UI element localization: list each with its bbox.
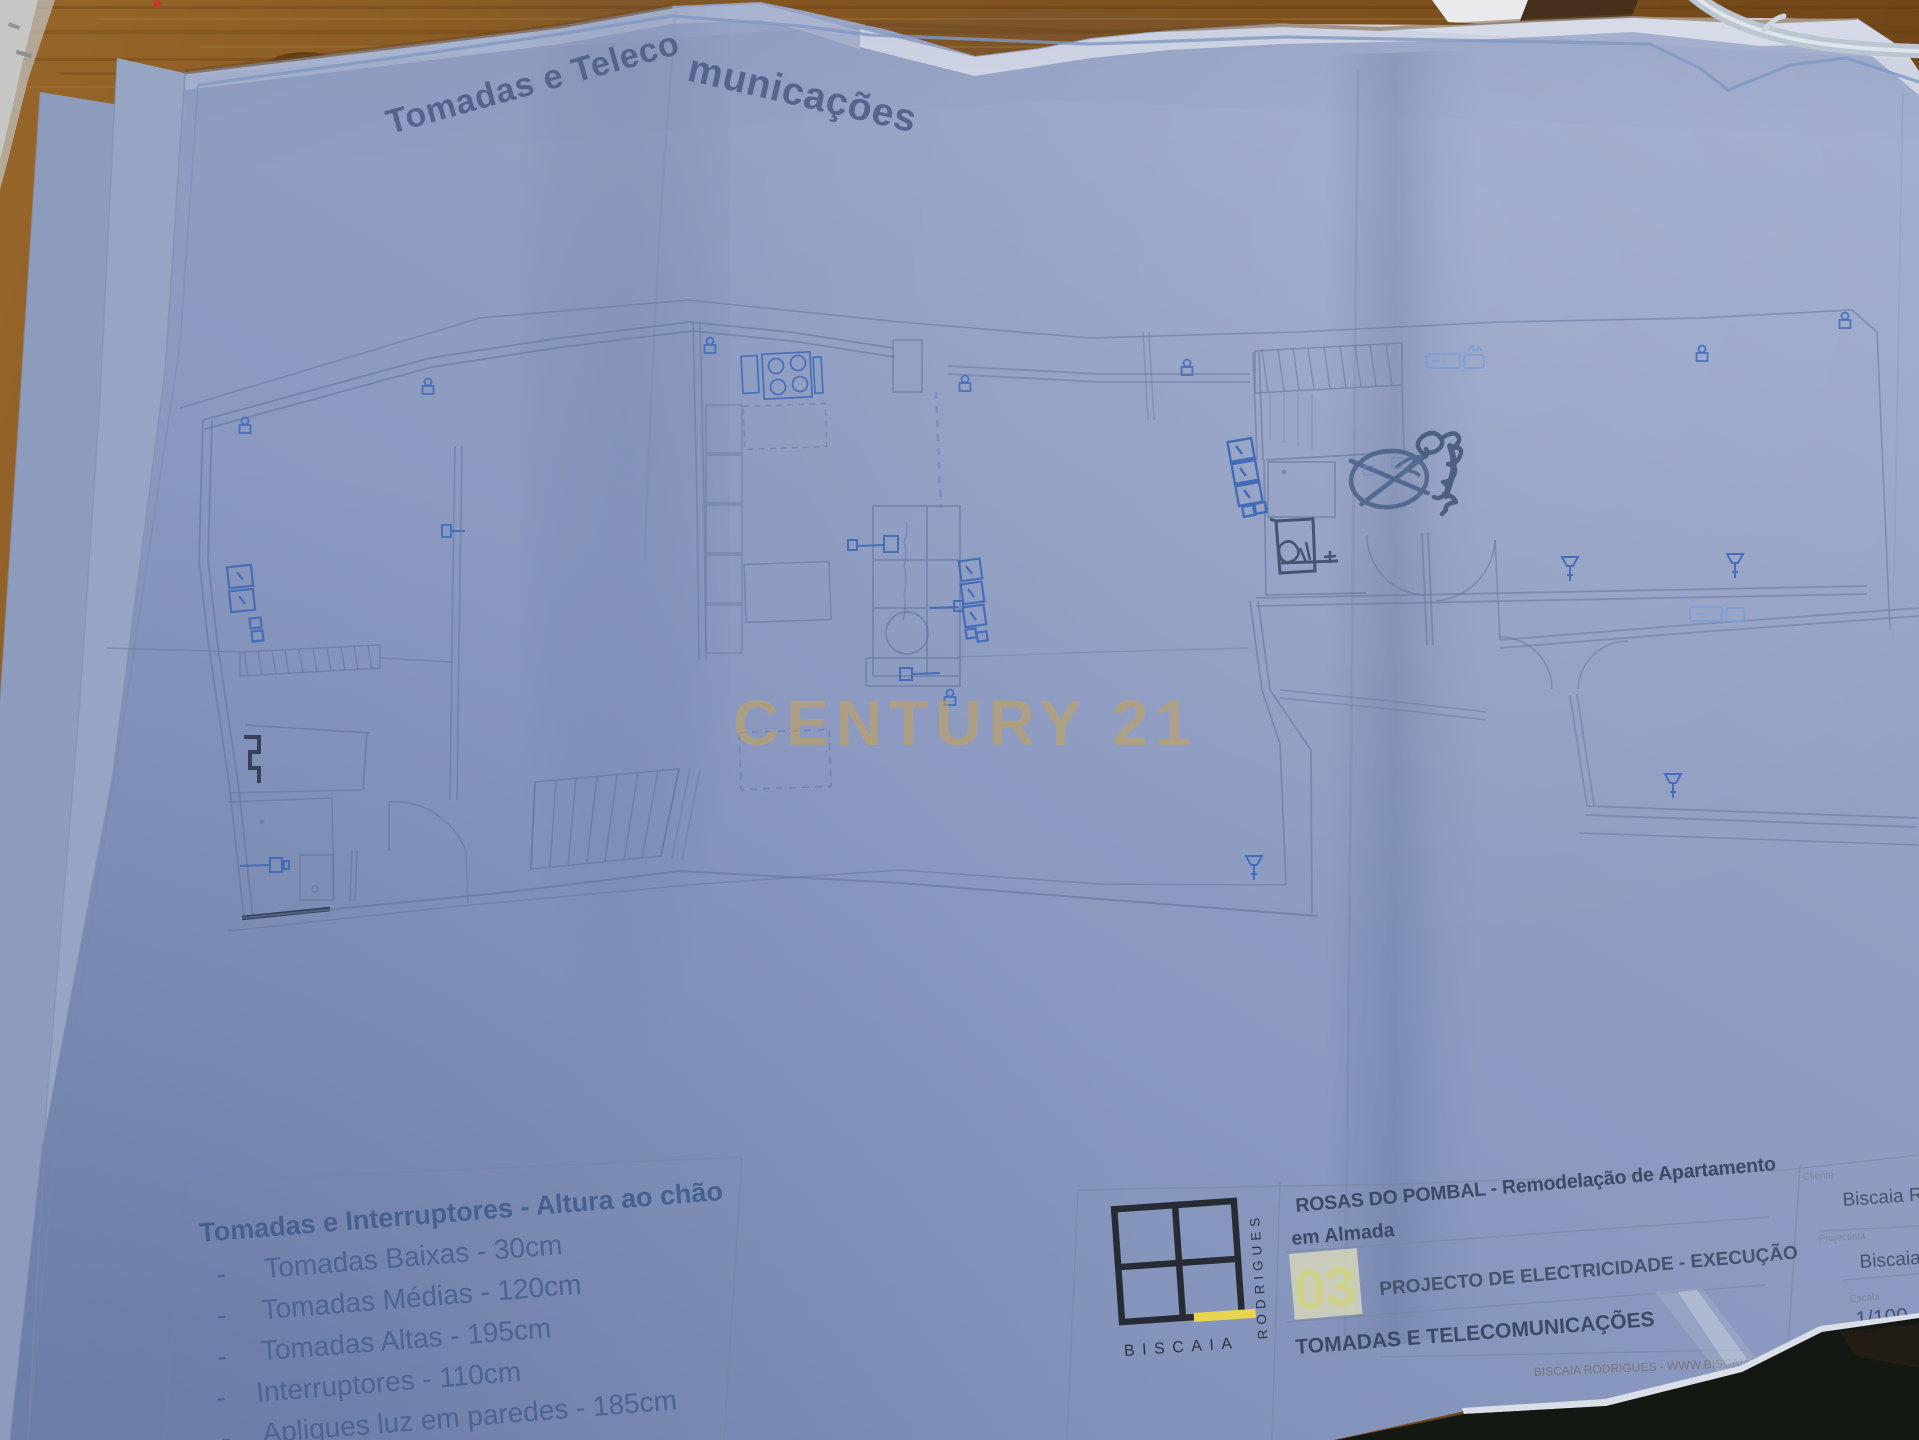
svg-text:Biscaia R: Biscaia R — [1859, 1246, 1919, 1273]
svg-text:CENTURY 21: CENTURY 21 — [733, 687, 1198, 759]
svg-text:Cliente: Cliente — [1802, 1170, 1834, 1183]
svg-text:Escala: Escala — [1849, 1292, 1880, 1305]
svg-text:03: 03 — [1292, 1254, 1360, 1322]
